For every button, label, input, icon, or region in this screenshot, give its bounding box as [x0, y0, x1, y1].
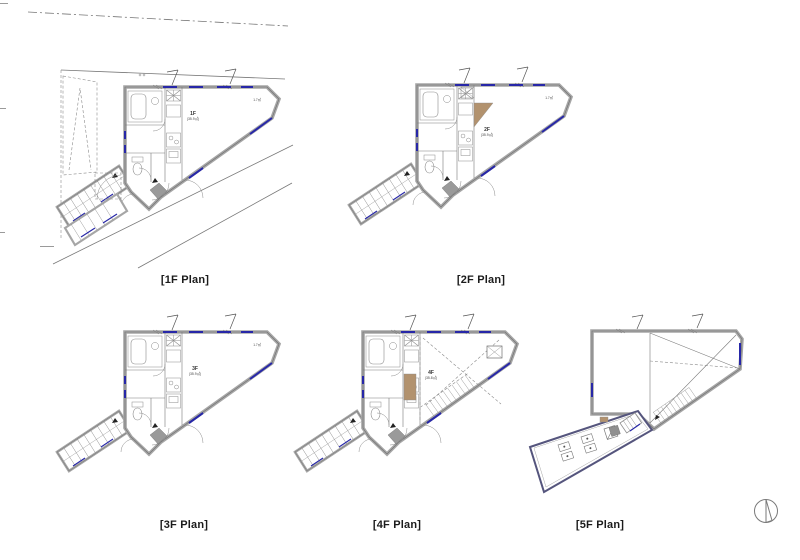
north-arrow-icon [748, 493, 784, 529]
floor-plan-2f: 2F (35.9㎡) 1.7㎡ [345, 58, 580, 263]
wood-sill [600, 417, 608, 422]
edge-tick [0, 232, 5, 233]
roof-terrace [530, 411, 652, 492]
edge-tick [0, 108, 6, 109]
plan-label-2f: [2F Plan] [457, 274, 505, 286]
floor-plan-1f: 1F (35.9㎡) 1.7㎡ [20, 0, 320, 292]
building-footprint-5f [592, 314, 742, 429]
floor-plan-5f [520, 312, 775, 512]
wood-cabinet [404, 374, 416, 400]
drawing-sheet: 1F (35.9㎡) 1.7㎡ 2F (35.9㎡) 1.7㎡ 3F (35.9… [0, 0, 800, 560]
room-area-1f: (35.9㎡) [187, 116, 199, 121]
building-footprint-2f [349, 67, 571, 224]
corner-note-2f: 1.7㎡ [545, 95, 553, 100]
room-area-4f: (35.8㎡) [425, 375, 437, 380]
floor-plan-3f: 3F (35.9㎡) 1.7㎡ [52, 303, 297, 508]
plan-label-4f: [4F Plan] [373, 519, 421, 531]
floor-plan-4f: 4F (35.8㎡) [288, 300, 528, 510]
corner-note-3f: 1.7㎡ [253, 342, 261, 347]
ac-unit-box [487, 346, 502, 358]
corner-note-1f: 1.7㎡ [253, 97, 261, 102]
building-footprint-3f [57, 314, 279, 471]
room-area-3f: (35.9㎡) [189, 371, 201, 376]
room-area-2f: (35.9㎡) [481, 132, 493, 137]
building-footprint-1f [57, 69, 279, 226]
plan-label-1f: [1F Plan] [161, 274, 209, 286]
adjacent-structure-dashed [63, 76, 97, 175]
edge-tick [40, 246, 54, 247]
plan-label-3f: [3F Plan] [160, 519, 208, 531]
edge-tick [0, 3, 8, 4]
plan-label-5f: [5F Plan] [576, 519, 624, 531]
